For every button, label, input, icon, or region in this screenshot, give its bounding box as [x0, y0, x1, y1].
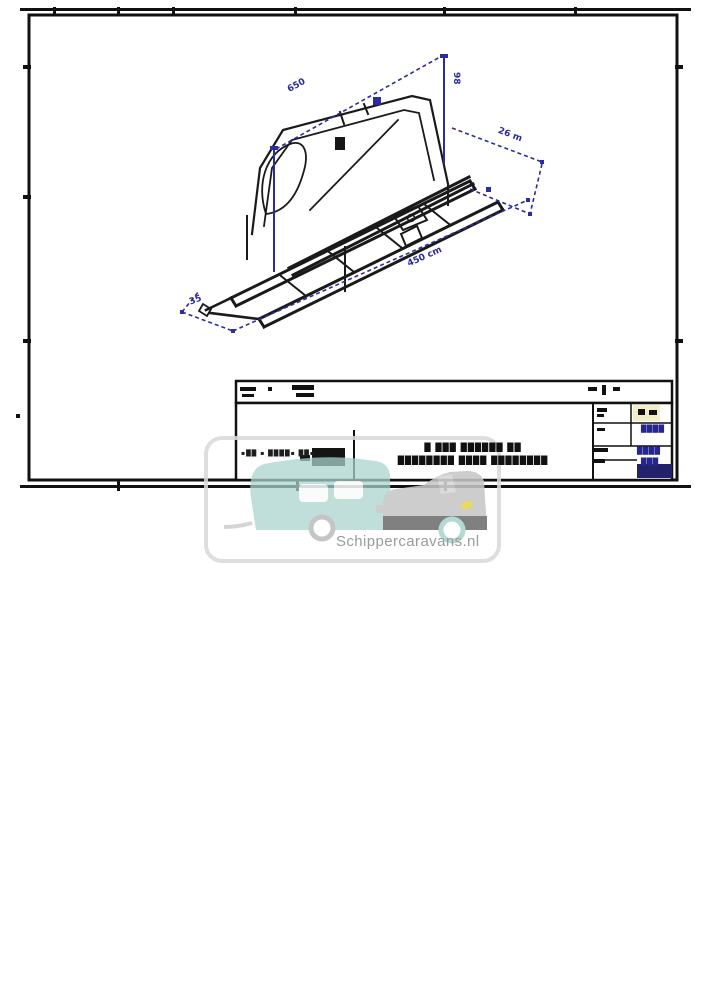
drawing-title-line1: █ ███ ██████ ██ [388, 443, 558, 452]
dimension-label-height: 98 [451, 72, 461, 85]
caravan-wheel [311, 517, 333, 539]
drawing-sheet: 650 98 26 m 450 cm 35 ▪██ ▪ ████▪ ██▪ █ … [0, 0, 709, 1000]
title-block-field-2: ████ [637, 447, 661, 455]
drawing-title-line2: ████████ ████ ████████ [388, 456, 558, 465]
title-block-field-3: ███ [641, 458, 659, 466]
chassis-isometric-view [199, 96, 503, 327]
doc-number-cell [637, 464, 672, 478]
company-name: ▪██ ▪ ████▪ ██▪ [241, 450, 315, 457]
watermark-text: Schippercaravans.nl [336, 533, 480, 550]
sheet-graphics [0, 0, 709, 1000]
dimension-lines [180, 54, 544, 333]
title-block-field-1: ████ [641, 425, 665, 433]
